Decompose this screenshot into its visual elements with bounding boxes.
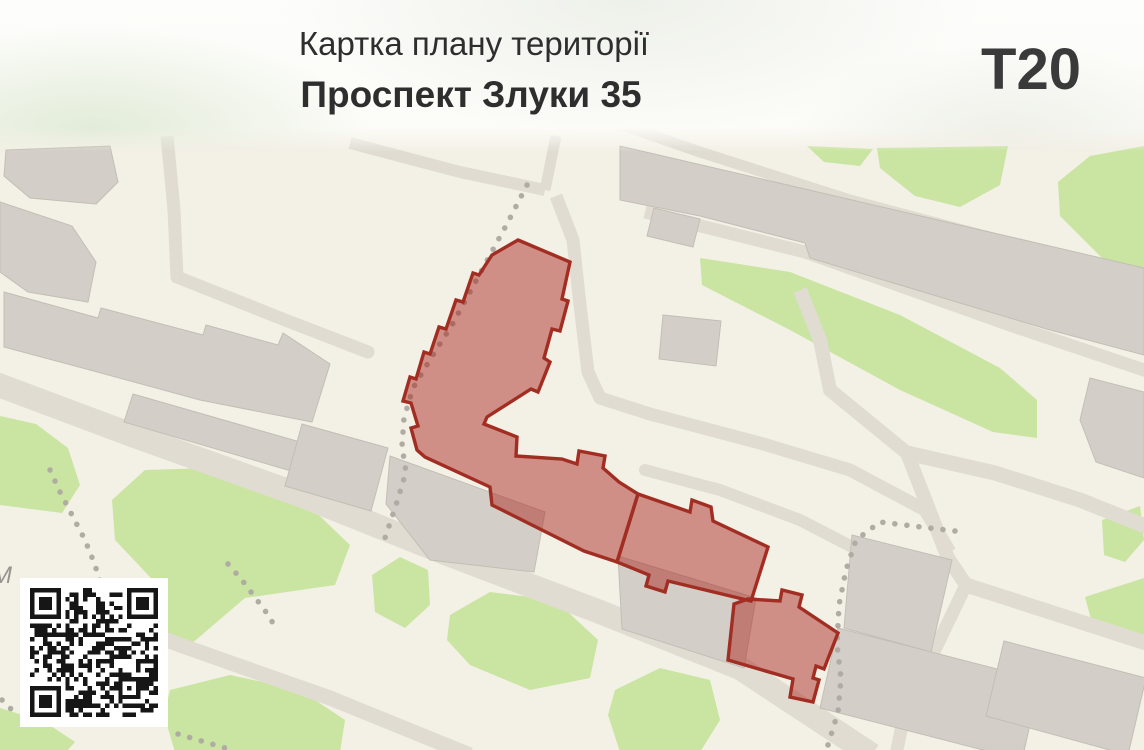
qr-code <box>20 578 168 727</box>
page-title: Картка плану території <box>299 25 649 63</box>
sheet-code: T20 <box>981 36 1081 103</box>
plan-card: М Картка плану території Проспект Злуки … <box>0 0 1144 750</box>
page-subtitle: Проспект Злуки 35 <box>300 74 641 116</box>
street-name-label: М <box>0 562 12 590</box>
qr-code-pattern <box>30 588 158 717</box>
